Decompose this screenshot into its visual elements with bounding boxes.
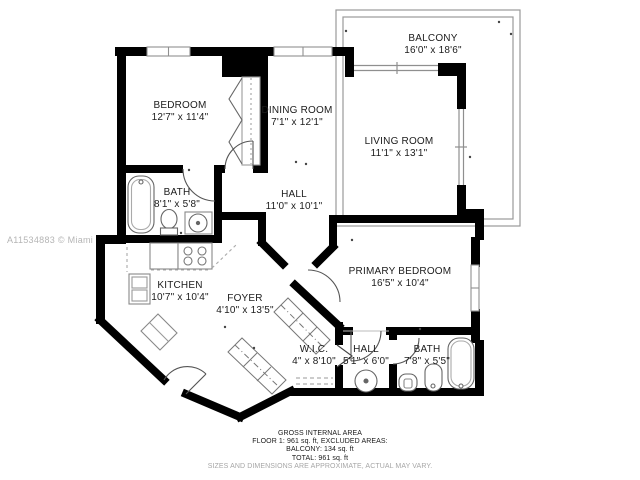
room-name: BATH — [404, 344, 450, 356]
room-dims: 10'7" x 10'4" — [151, 292, 208, 304]
room-name: HALL — [266, 189, 323, 201]
room-dims: 4'10" x 13'5" — [216, 305, 273, 317]
room-name: W.I.C. — [292, 344, 336, 356]
washer-icon — [355, 370, 377, 392]
area-summary-floor1: FLOOR 1: 961 sq. ft, EXCLUDED AREAS: — [0, 438, 640, 446]
room-dims: 16'0" x 18'6" — [404, 45, 461, 57]
toilet-2-icon — [399, 374, 417, 391]
room-label-living-room: LIVING ROOM 11'1" x 13'1" — [365, 136, 434, 160]
floorplan-drawing — [0, 0, 640, 480]
room-label-bath-bottom: BATH 7'8" x 5'5" — [404, 344, 450, 368]
pedestal-sink-icon — [425, 364, 442, 391]
floorplan-page: A11534883 © Miami MLS® 2024 — [0, 0, 640, 480]
room-name: BALCONY — [404, 33, 461, 45]
room-name: PRIMARY BEDROOM — [349, 266, 452, 278]
toilet-icon — [161, 210, 178, 236]
room-dims: 5'1" x 6'0" — [343, 356, 389, 368]
room-label-primary-bedroom: PRIMARY BEDROOM 16'5" x 10'4" — [349, 266, 452, 290]
window-primary-icon — [471, 265, 479, 311]
room-name: HALL — [343, 344, 389, 356]
window-bedroom-icon — [147, 47, 190, 56]
room-dims: 16'5" x 10'4" — [349, 278, 452, 290]
glass-walls — [354, 62, 467, 186]
bathtub-2-icon — [448, 338, 474, 389]
room-dims: 11'1" x 13'1" — [365, 148, 434, 160]
room-label-bath-top: BATH 8'1" x 5'8" — [154, 187, 200, 211]
room-label-balcony: BALCONY 16'0" x 18'6" — [404, 33, 461, 57]
room-name: LIVING ROOM — [365, 136, 434, 148]
room-label-foyer: FOYER 4'10" x 13'5" — [216, 293, 273, 317]
room-label-hall-main: HALL 11'0" x 10'1" — [266, 189, 323, 213]
room-name: BEDROOM — [152, 100, 209, 112]
room-dims: 4" x 8'10" — [292, 356, 336, 368]
room-dims: 12'7" x 11'4" — [152, 112, 209, 124]
room-label-wic: W.I.C. 4" x 8'10" — [292, 344, 336, 368]
room-dims: 8'1" x 5'8" — [154, 199, 200, 211]
bedroom-closet — [229, 77, 260, 165]
counter-icon — [150, 243, 178, 269]
area-summary-balcony: BALCONY: 134 sq. ft — [0, 446, 640, 454]
room-dims: 7'1" x 12'1" — [261, 117, 332, 129]
room-label-bedroom: BEDROOM 12'7" x 11'4" — [152, 100, 209, 124]
kitchen-sink-icon — [129, 274, 150, 304]
room-label-hall-bottom: HALL 5'1" x 6'0" — [343, 344, 389, 368]
bathroom-sink-icon — [185, 212, 212, 234]
room-dims: 7'8" x 5'5" — [404, 356, 450, 368]
area-summary-total: TOTAL: 961 sq. ft — [0, 455, 640, 463]
closet-strip-lower — [228, 338, 286, 394]
area-summary: GROSS INTERNAL AREA FLOOR 1: 961 sq. ft,… — [0, 430, 640, 471]
kitchen-island-icon — [141, 314, 177, 350]
room-name: DINING ROOM — [261, 105, 332, 117]
room-label-dining-room: DINING ROOM 7'1" x 12'1" — [261, 105, 332, 129]
room-name: FOYER — [216, 293, 273, 305]
room-name: KITCHEN — [151, 280, 208, 292]
stove-icon — [178, 243, 212, 269]
room-name: BATH — [154, 187, 200, 199]
room-dims: 11'0" x 10'1" — [266, 201, 323, 213]
room-label-kitchen: KITCHEN 10'7" x 10'4" — [151, 280, 208, 304]
area-summary-title: GROSS INTERNAL AREA — [0, 430, 640, 438]
area-summary-disclaimer: SIZES AND DIMENSIONS ARE APPROXIMATE, AC… — [0, 463, 640, 471]
wic-shelving — [296, 378, 333, 384]
window-dining-icon — [274, 47, 332, 56]
bathtub-icon — [128, 176, 154, 233]
